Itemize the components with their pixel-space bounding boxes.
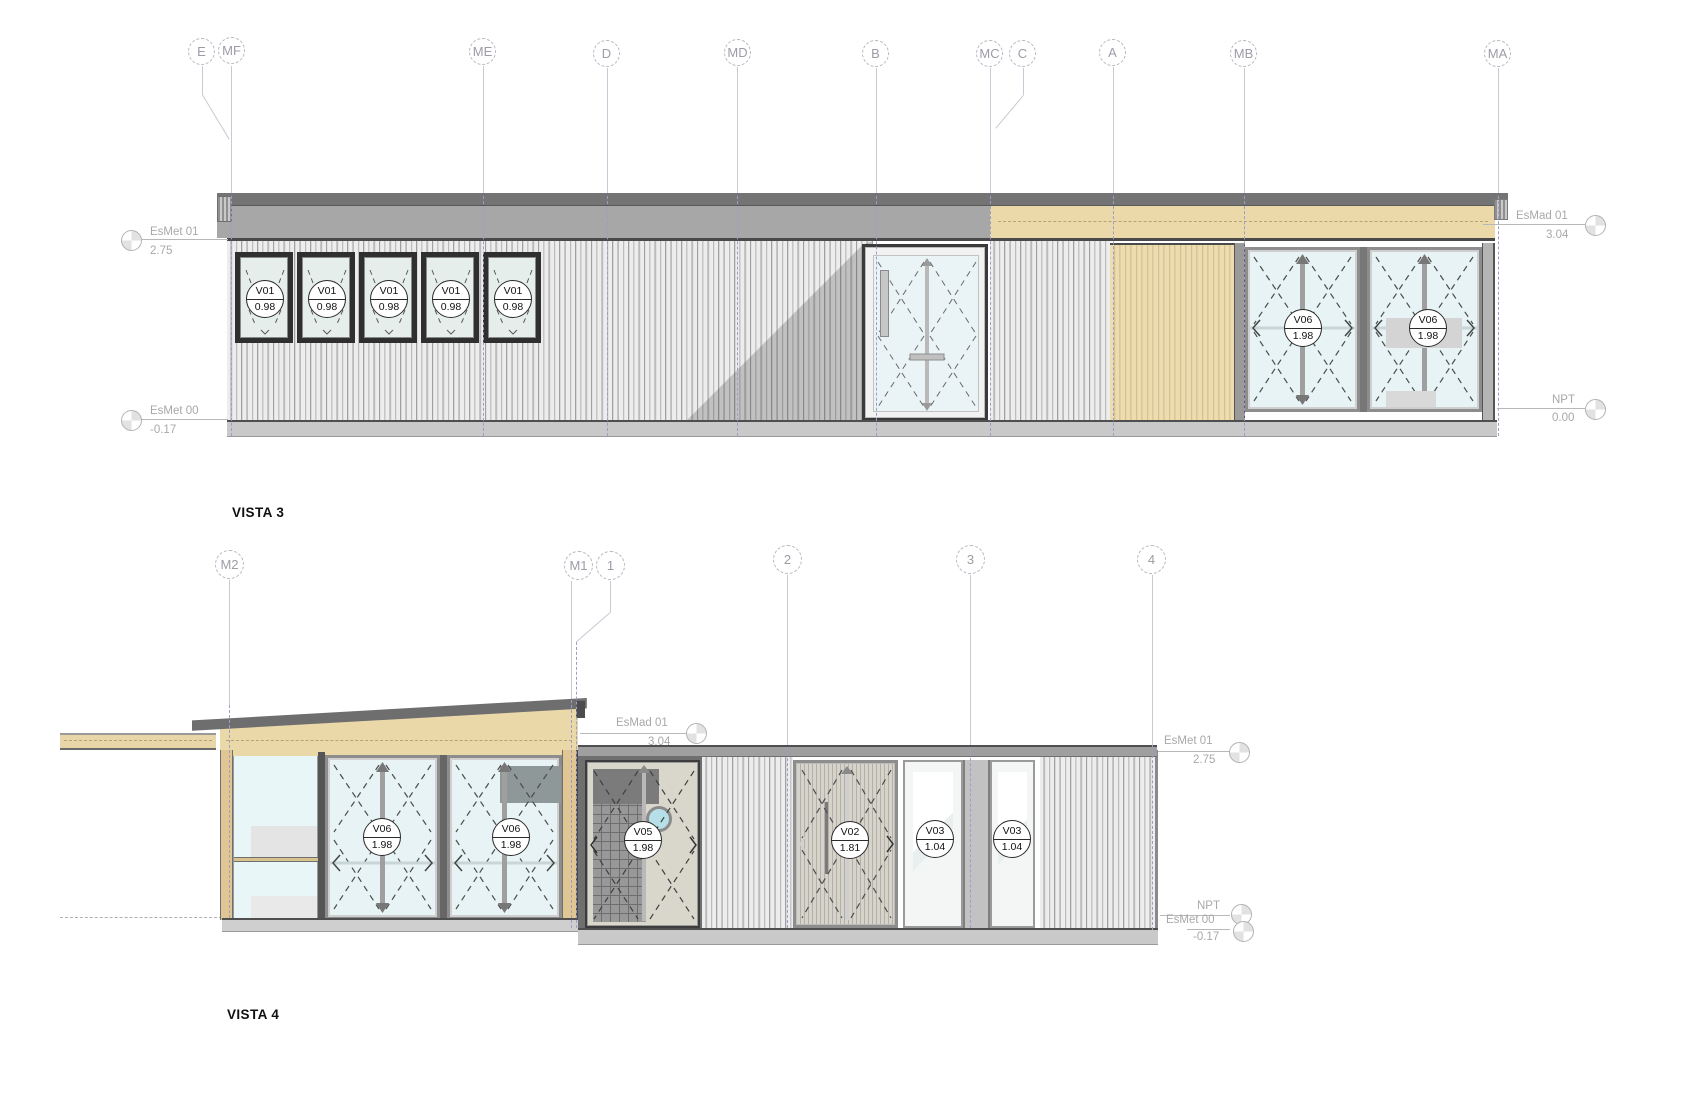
level-value: 3.04 — [1546, 229, 1568, 241]
grid-label: ME — [473, 44, 493, 59]
wall-top-line — [227, 238, 1495, 241]
grid-bubble-MB: MB — [1230, 40, 1257, 67]
pergola-beam — [60, 733, 216, 750]
level-name: EsMad 01 — [616, 717, 668, 729]
grid-label: A — [1108, 45, 1117, 60]
level-value: 3.04 — [648, 736, 670, 748]
grid-bubble-3: 3 — [956, 545, 985, 574]
level-line — [140, 239, 228, 240]
window-tag-v03: V031.04 — [993, 820, 1031, 858]
tag-code: V01 — [433, 281, 469, 300]
tag-code: V06 — [1285, 310, 1321, 329]
grid-line-dashed — [1498, 196, 1499, 436]
tag-value: 1.04 — [917, 840, 953, 858]
base-platform-metal — [578, 928, 1158, 945]
tag-value: 1.98 — [1410, 329, 1446, 347]
tag-value: 0.98 — [309, 300, 345, 318]
window-tag-v06: V061.98 — [1409, 309, 1447, 347]
grid-line-dashed — [876, 196, 877, 436]
ground-line — [60, 917, 222, 918]
tag-value: 1.04 — [994, 840, 1030, 858]
tag-code: V06 — [493, 819, 529, 838]
corrugated-siding — [990, 241, 1110, 420]
wood-siding — [1110, 243, 1234, 420]
tag-code: V01 — [309, 281, 345, 300]
wall-corner-edge — [1155, 750, 1158, 930]
tag-value: 1.98 — [625, 841, 661, 859]
roof-fascia-wood — [990, 206, 1495, 238]
level-line — [1187, 929, 1230, 930]
grid-bubble-MD: MD — [724, 39, 751, 66]
base-platform — [227, 420, 1497, 437]
window-tag-v01: V010.98 — [370, 280, 408, 318]
grid-line-dashed — [970, 748, 971, 928]
grid-label: MB — [1234, 46, 1254, 61]
grid-bubble-MC: MC — [976, 40, 1003, 67]
level-name: NPT — [1552, 394, 1575, 406]
grid-bubble-E: E — [188, 38, 215, 65]
interior-furniture — [251, 826, 317, 857]
tag-value: 1.98 — [493, 838, 529, 856]
grid-line — [231, 66, 232, 193]
grid-bubble-M1: M1 — [564, 551, 593, 580]
grid-line — [483, 66, 484, 193]
level-symbol — [121, 230, 142, 251]
roof-fascia-gray — [217, 206, 990, 238]
level-name: NPT — [1197, 900, 1220, 912]
grid-label: MD — [727, 45, 747, 60]
grid-line-elbow — [995, 95, 1023, 129]
tag-code: V01 — [247, 281, 283, 300]
corrugated-siding — [1040, 750, 1155, 930]
level-name: EsMet 01 — [1164, 735, 1213, 747]
door-jamb — [1360, 247, 1367, 412]
grid-label: B — [871, 46, 880, 61]
view-title-vista4: VISTA 4 — [227, 1007, 279, 1022]
elevation-sheet: E MF ME D MD B MC C A MB MA — [0, 0, 1695, 1094]
tag-code: V05 — [625, 822, 661, 841]
level-value: 2.75 — [1193, 754, 1215, 766]
level-line — [140, 419, 228, 420]
tag-value: 1.81 — [832, 841, 868, 859]
grid-line — [990, 68, 991, 193]
grid-line-dashed — [571, 700, 572, 928]
grid-line-dashed — [483, 196, 484, 436]
window-tag-v06: V061.98 — [363, 818, 401, 856]
level-name: EsMet 01 — [150, 226, 199, 238]
grid-line — [229, 580, 230, 705]
door-jamb — [440, 755, 447, 920]
grid-bubble-2: 2 — [773, 545, 802, 574]
window-tag-v06: V061.98 — [1284, 309, 1322, 347]
level-line — [1483, 224, 1585, 225]
grid-label: MC — [979, 46, 999, 61]
base-platform-wood — [222, 918, 578, 932]
grid-line — [737, 67, 738, 193]
grid-line — [970, 575, 971, 748]
window-tag-v03: V031.04 — [916, 820, 954, 858]
tag-code: V01 — [495, 281, 531, 300]
sloped-roof-endcap — [576, 701, 585, 718]
level-line — [580, 733, 686, 734]
grid-line-dashed — [787, 748, 788, 928]
grid-line — [1113, 67, 1114, 193]
grid-label: MA — [1488, 46, 1508, 61]
tag-code: V02 — [832, 822, 868, 841]
grid-label: M2 — [220, 557, 238, 572]
grid-bubble-ME: ME — [469, 38, 496, 65]
level-symbol — [1229, 742, 1250, 763]
window-jamb — [963, 760, 990, 928]
level-symbol — [1585, 399, 1606, 420]
tag-code: V03 — [917, 821, 953, 840]
tag-value: 0.98 — [247, 300, 283, 318]
grid-line-elbow — [202, 94, 230, 139]
grid-line — [610, 581, 611, 612]
tag-value: 1.98 — [364, 838, 400, 856]
grid-bubble-A: A — [1099, 39, 1126, 66]
grid-bubble-B: B — [862, 40, 889, 67]
tag-code: V06 — [364, 819, 400, 838]
corrugated-siding — [702, 750, 793, 930]
tag-value: 0.98 — [371, 300, 407, 318]
tag-code: V01 — [371, 281, 407, 300]
view-title-vista3: VISTA 3 — [232, 505, 284, 520]
door-jamb — [318, 752, 325, 920]
interior-furniture — [1386, 391, 1436, 407]
wood-dash-line — [64, 740, 212, 741]
roof-downspout — [217, 196, 232, 222]
opening-dashes-icon — [874, 256, 980, 413]
grid-line-dashed — [576, 642, 577, 928]
wall-corner-post — [1482, 243, 1495, 420]
grid-bubble-D: D — [593, 40, 620, 67]
grid-bubble-MA: MA — [1484, 40, 1511, 67]
grid-line — [1152, 575, 1153, 745]
grid-line — [202, 66, 203, 95]
grid-bubble-C: C — [1009, 40, 1036, 67]
grid-bubble-MF: MF — [218, 37, 245, 64]
wood-dash-line — [998, 221, 1488, 222]
window-tag-v06: V061.98 — [492, 818, 530, 856]
level-line — [1158, 751, 1230, 752]
window-tag-v02: V021.81 — [831, 821, 869, 859]
grid-line — [787, 575, 788, 748]
grid-line-dashed — [607, 196, 608, 436]
grid-line-dashed — [737, 196, 738, 436]
level-symbol — [121, 410, 142, 431]
grid-line — [1498, 68, 1499, 193]
grid-label: 1 — [607, 558, 614, 573]
window-tag-v01: V010.98 — [494, 280, 532, 318]
grid-line — [607, 68, 608, 193]
tag-value: 0.98 — [495, 300, 531, 318]
grid-bubble-M2: M2 — [215, 550, 244, 579]
grid-line-dashed — [990, 196, 991, 436]
grid-bubble-1: 1 — [596, 551, 625, 580]
level-name: EsMad 01 — [1516, 210, 1568, 222]
door-side-panel — [880, 270, 889, 337]
grid-label: MF — [222, 43, 241, 58]
level-value: -0.17 — [150, 424, 176, 436]
grid-label: C — [1018, 46, 1027, 61]
window-tag-v01: V010.98 — [308, 280, 346, 318]
level-value: -0.17 — [1193, 931, 1219, 943]
horizontal-mullion — [234, 857, 319, 862]
window-tag-v05: V051.98 — [624, 821, 662, 859]
grid-line-dashed — [231, 196, 232, 436]
grid-line-dashed — [229, 705, 230, 918]
grid-label: D — [602, 46, 611, 61]
level-value: 0.00 — [1552, 412, 1574, 424]
grid-label: M1 — [569, 558, 587, 573]
grid-line-elbow — [576, 612, 611, 642]
level-name: EsMet 00 — [1166, 914, 1215, 926]
grid-bubble-4: 4 — [1137, 545, 1166, 574]
grid-line — [876, 68, 877, 193]
level-symbol — [1585, 215, 1606, 236]
level-symbol — [1233, 921, 1254, 942]
wood-post — [220, 750, 233, 920]
roof-edge-strip — [217, 193, 1508, 206]
level-value: 2.75 — [150, 245, 172, 257]
wood-dash-line — [226, 740, 572, 741]
grid-label: 4 — [1148, 552, 1155, 567]
grid-line-dashed — [1244, 196, 1245, 436]
tag-value: 1.98 — [1285, 329, 1321, 347]
grid-label: E — [197, 44, 206, 59]
grid-label: 3 — [967, 552, 974, 567]
tag-value: 0.98 — [433, 300, 469, 318]
window-tag-v01: V010.98 — [432, 280, 470, 318]
level-name: EsMet 00 — [150, 405, 199, 417]
tag-code: V03 — [994, 821, 1030, 840]
window-tag-v01: V010.98 — [246, 280, 284, 318]
grid-line-dashed — [1113, 196, 1114, 436]
roof-bracket-right — [1494, 199, 1508, 220]
grid-label: 2 — [784, 552, 791, 567]
grid-line — [1023, 68, 1024, 95]
interior-furniture — [251, 896, 317, 919]
entry-door — [862, 244, 988, 421]
fixed-glass-bay — [233, 755, 318, 920]
grid-line-dashed — [1152, 745, 1153, 930]
level-symbol — [686, 723, 707, 744]
grid-line — [1244, 68, 1245, 193]
tag-code: V06 — [1410, 310, 1446, 329]
level-line — [1497, 408, 1585, 409]
grid-line — [571, 581, 572, 700]
